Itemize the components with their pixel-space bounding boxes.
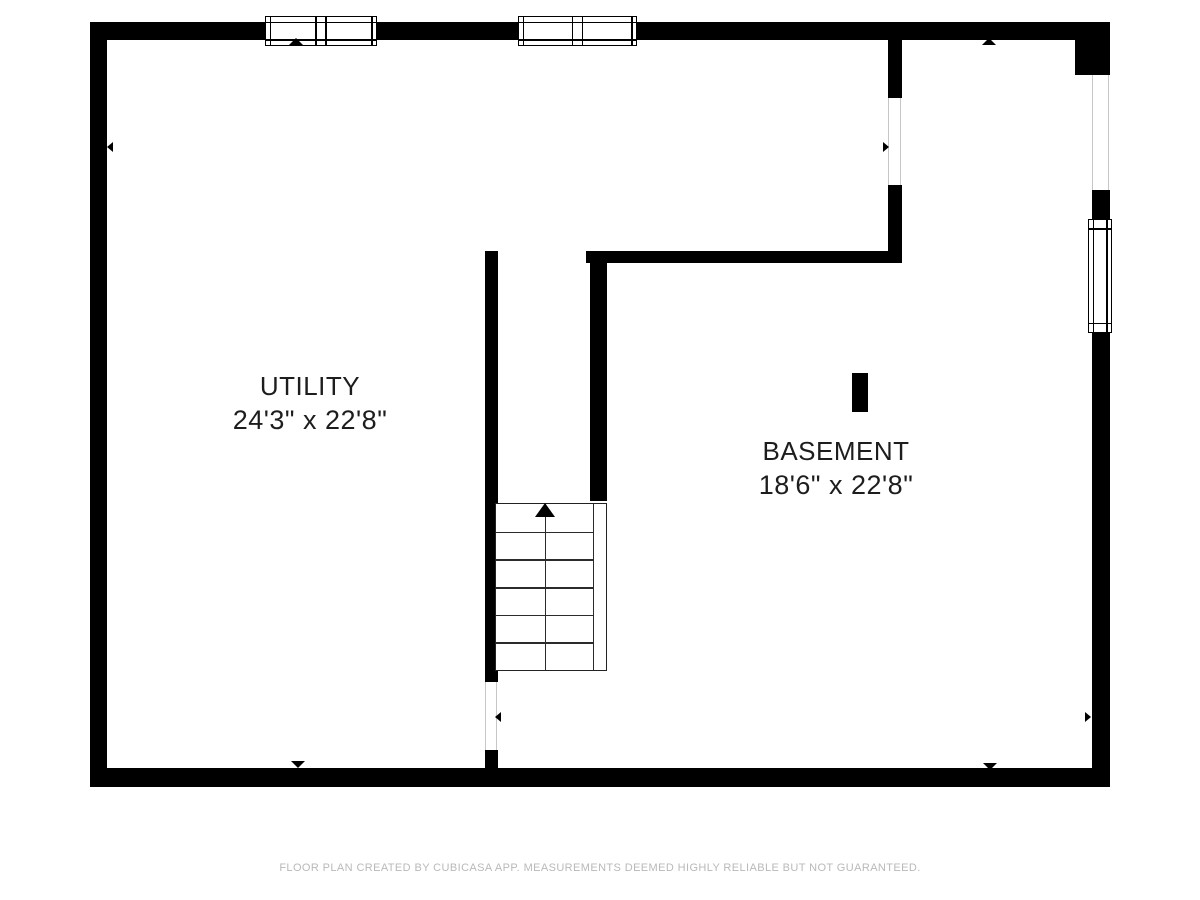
window-mullion — [325, 17, 327, 45]
footer-disclaimer: FLOOR PLAN CREATED BY CUBICASA APP. MEAS… — [0, 862, 1200, 874]
measure-arrow-left-icon — [107, 142, 113, 152]
stair-direction-up-icon — [535, 503, 555, 517]
window-end-cap — [523, 17, 525, 45]
measure-arrow-down-icon — [983, 763, 997, 770]
window-right-icon — [1088, 219, 1112, 333]
wall-basement-top — [586, 251, 902, 263]
right-opening-edge-left — [1092, 75, 1093, 190]
window-end-cap — [631, 17, 633, 45]
window-top-center-icon — [518, 16, 637, 46]
window-mullion — [582, 17, 584, 45]
stair-door-edge-left — [485, 682, 486, 750]
wall-left — [90, 22, 107, 787]
window-frame-line — [1106, 220, 1108, 332]
measure-arrow-right-icon — [883, 142, 889, 152]
wall-right-stub — [1092, 190, 1110, 220]
wall-bottom — [90, 768, 1110, 787]
staircase — [495, 503, 607, 671]
wall-stair-right — [590, 251, 607, 501]
window-end-cap — [1089, 323, 1111, 325]
window-frame-line — [519, 22, 636, 24]
measure-arrow-right-icon — [1085, 712, 1091, 722]
room-name-basement: BASEMENT — [706, 438, 966, 464]
stair-center-line — [545, 504, 547, 670]
wall-right-lower — [1092, 332, 1110, 768]
wall-stair-left-bottom-stub — [485, 750, 498, 768]
window-end-cap — [371, 17, 373, 45]
divider-door-edge-right — [900, 98, 901, 185]
support-column — [852, 373, 868, 412]
wall-divider-top-stub — [888, 40, 902, 98]
room-name-utility: UTILITY — [180, 373, 440, 399]
window-end-cap — [270, 17, 272, 45]
window-frame-line — [1093, 220, 1095, 332]
window-mullion — [572, 17, 574, 45]
window-end-cap — [1089, 228, 1111, 230]
stair-rail-line — [593, 504, 595, 670]
measure-arrow-up-icon — [289, 38, 303, 45]
window-frame-line — [266, 22, 376, 24]
room-dims-utility: 24'3" x 22'8" — [180, 407, 440, 434]
window-top-left-icon — [265, 16, 377, 46]
wall-right-corner-block — [1075, 40, 1110, 75]
measure-arrow-left-icon — [495, 712, 501, 722]
measure-arrow-up-icon — [982, 38, 996, 45]
room-dims-basement: 18'6" x 22'8" — [706, 472, 966, 499]
floor-plan: UTILITY 24'3" x 22'8" BASEMENT 18'6" x 2… — [0, 0, 1200, 900]
measure-arrow-down-icon — [291, 761, 305, 768]
right-opening-edge-right — [1108, 75, 1109, 190]
window-frame-line — [266, 39, 376, 41]
window-frame-line — [519, 39, 636, 41]
window-mullion — [315, 17, 317, 45]
